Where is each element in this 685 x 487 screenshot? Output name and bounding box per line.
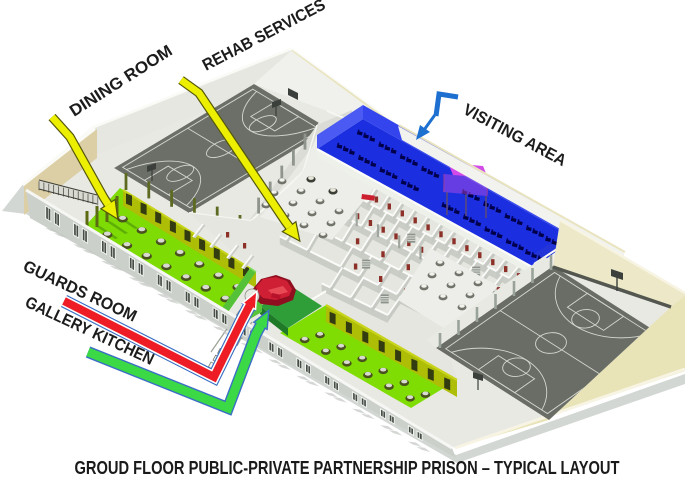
svg-text:GROUD FLOOR PUBLIC-PRIVATE PAR: GROUD FLOOR PUBLIC-PRIVATE PARTNERSHIP P… (75, 457, 621, 478)
